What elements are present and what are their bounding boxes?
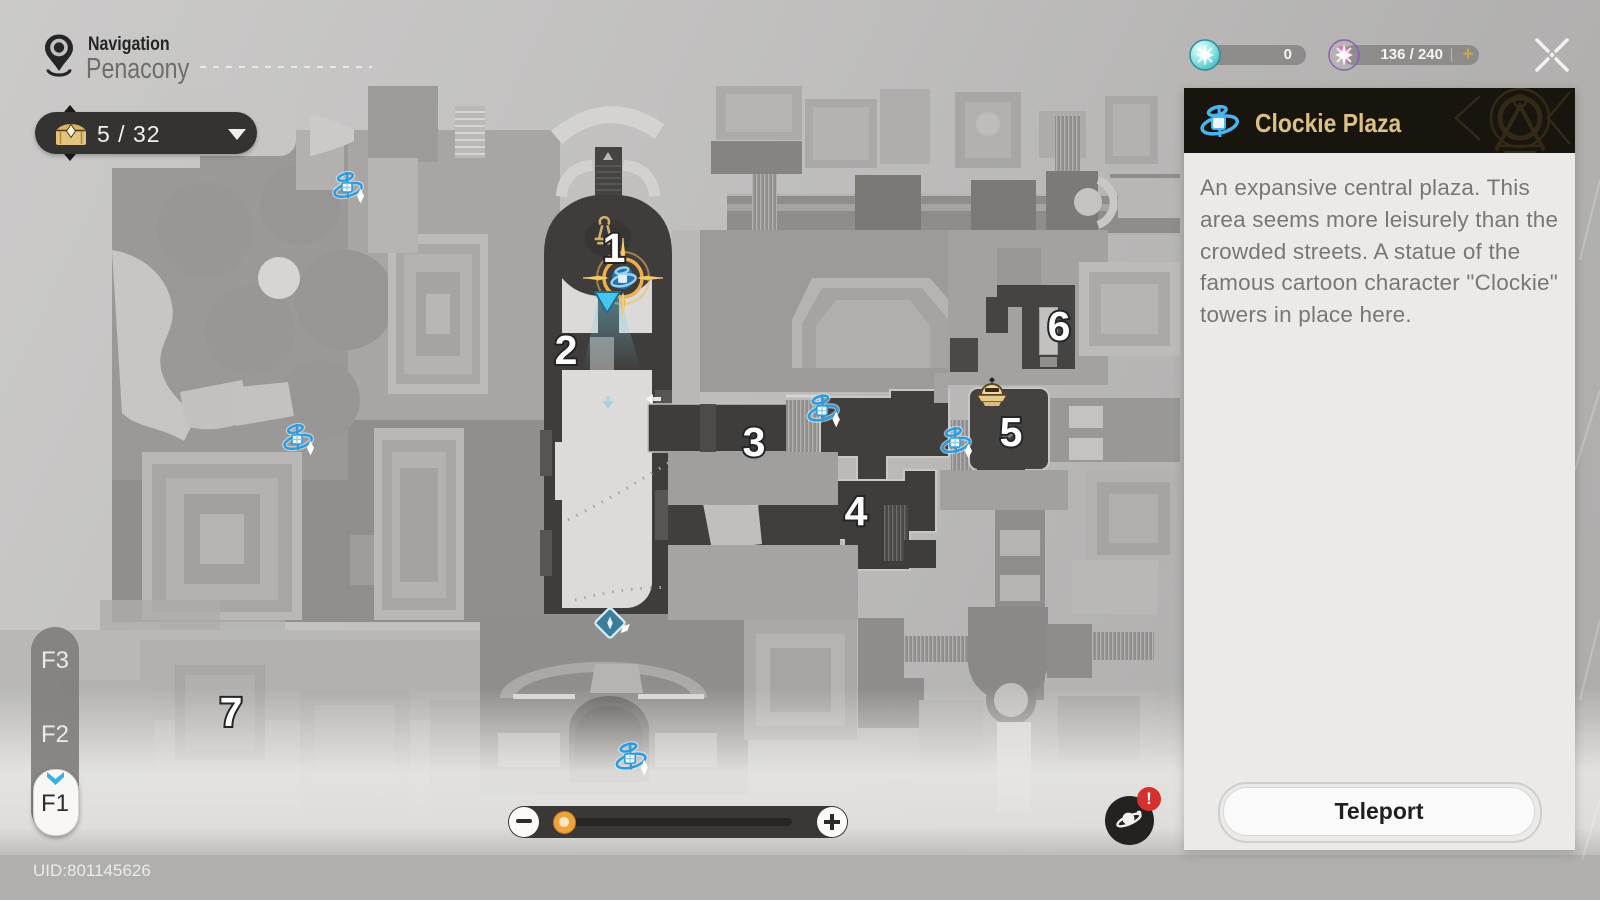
svg-text:7: 7 — [220, 689, 243, 735]
svg-text:5: 5 — [1000, 409, 1023, 455]
svg-text:1: 1 — [603, 225, 626, 271]
svg-text:2: 2 — [555, 327, 578, 373]
svg-text:4: 4 — [845, 488, 868, 534]
svg-text:6: 6 — [1048, 303, 1071, 349]
svg-text:3: 3 — [743, 419, 766, 465]
